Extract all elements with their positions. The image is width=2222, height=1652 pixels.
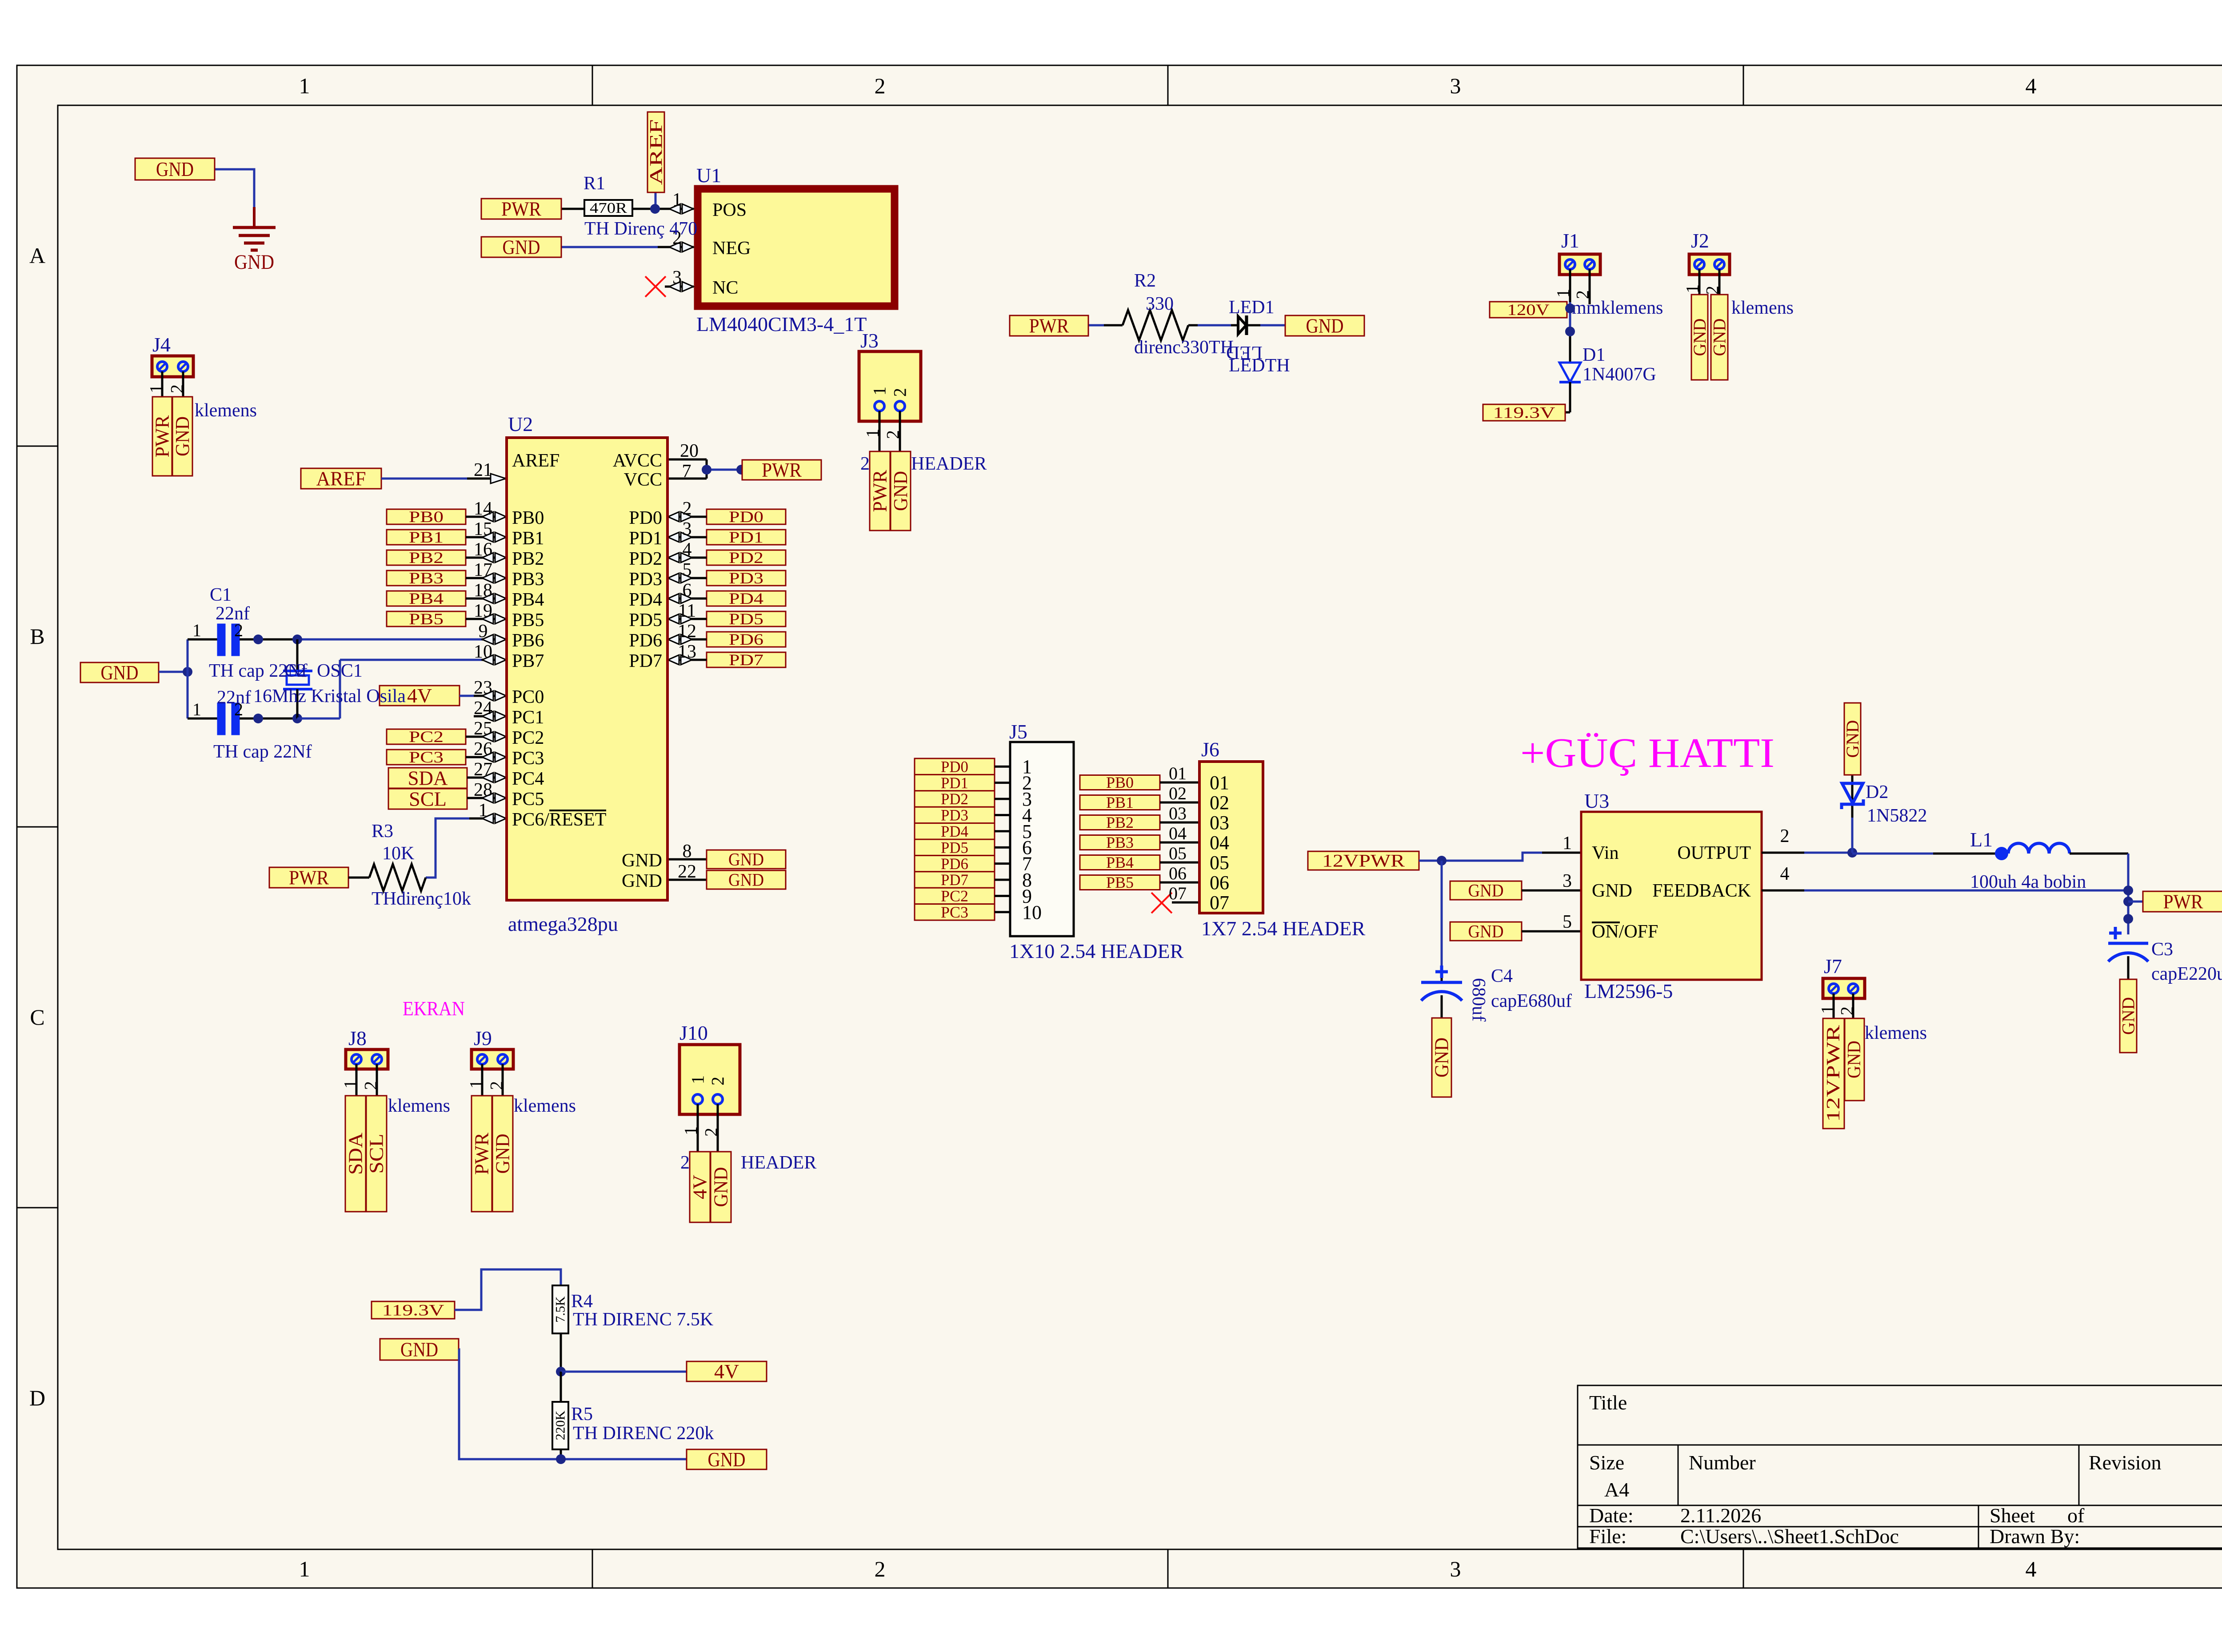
svg-text:AREF: AREF xyxy=(646,120,666,185)
svg-text:Revision: Revision xyxy=(2089,1451,2162,1474)
svg-text:2: 2 xyxy=(167,384,187,393)
svg-text:1: 1 xyxy=(146,384,166,393)
svg-text:LM4040CIM3-4_1T: LM4040CIM3-4_1T xyxy=(696,313,867,335)
svg-text:05: 05 xyxy=(1210,852,1229,874)
svg-text:21: 21 xyxy=(474,460,492,480)
svg-text:PD5: PD5 xyxy=(941,838,968,856)
svg-text:06: 06 xyxy=(1169,863,1187,883)
svg-text:VCC: VCC xyxy=(624,470,662,490)
svg-text:330: 330 xyxy=(1146,294,1174,314)
svg-text:PWR: PWR xyxy=(762,459,802,481)
svg-text:SDA: SDA xyxy=(345,1133,367,1175)
svg-text:PB3: PB3 xyxy=(1106,834,1134,851)
svg-text:GND: GND xyxy=(492,1134,514,1174)
svg-text:GND: GND xyxy=(708,1448,746,1471)
svg-text:28: 28 xyxy=(474,780,492,800)
svg-text:LM2596-5: LM2596-5 xyxy=(1584,980,1673,1002)
svg-text:2: 2 xyxy=(883,430,903,439)
svg-text:OSC1: OSC1 xyxy=(317,661,363,681)
svg-text:PWR: PWR xyxy=(869,470,891,512)
svg-text:02: 02 xyxy=(1210,792,1229,814)
svg-text:27: 27 xyxy=(474,759,492,780)
svg-text:GND: GND xyxy=(1431,1037,1453,1077)
svg-text:10K: 10K xyxy=(382,843,414,864)
svg-text:01: 01 xyxy=(1169,763,1187,783)
svg-text:13: 13 xyxy=(678,642,696,662)
svg-text:PB4: PB4 xyxy=(1106,854,1134,871)
svg-text:R5: R5 xyxy=(571,1404,593,1425)
svg-text:atmega328pu: atmega328pu xyxy=(508,913,618,935)
svg-text:D1: D1 xyxy=(1583,345,1605,365)
svg-text:PD7: PD7 xyxy=(729,651,763,669)
svg-text:2: 2 xyxy=(1837,1006,1857,1015)
svg-text:R1: R1 xyxy=(583,173,605,194)
svg-text:18: 18 xyxy=(474,580,492,601)
svg-text:04: 04 xyxy=(1169,823,1187,843)
svg-text:GND: GND xyxy=(728,870,764,890)
svg-text:4V: 4V xyxy=(689,1175,711,1199)
svg-text:1: 1 xyxy=(299,1556,310,1581)
svg-text:R3: R3 xyxy=(372,821,393,842)
svg-text:U2: U2 xyxy=(508,413,533,435)
svg-text:GND: GND xyxy=(1306,315,1344,337)
svg-text:PD0: PD0 xyxy=(729,508,763,526)
svg-text:D2: D2 xyxy=(1866,782,1888,802)
svg-text:07: 07 xyxy=(1210,892,1229,914)
svg-text:PB2: PB2 xyxy=(409,549,444,567)
svg-text:PD6: PD6 xyxy=(629,630,662,651)
svg-text:GND: GND xyxy=(156,158,194,180)
svg-text:C3: C3 xyxy=(2151,939,2173,960)
svg-text:PB7: PB7 xyxy=(512,651,544,671)
svg-text:C2: C2 xyxy=(284,661,306,681)
svg-text:6: 6 xyxy=(683,580,692,601)
svg-text:PB6: PB6 xyxy=(512,630,544,651)
svg-text:THdirenç10k: THdirenç10k xyxy=(372,889,471,909)
svg-text:02: 02 xyxy=(1169,783,1187,803)
svg-text:+GÜÇ HATTI: +GÜÇ HATTI xyxy=(1520,730,1774,776)
svg-text:05: 05 xyxy=(1169,843,1187,863)
svg-text:GND: GND xyxy=(1842,720,1862,758)
svg-text:01: 01 xyxy=(1210,772,1229,794)
svg-text:Vin: Vin xyxy=(1592,843,1619,863)
svg-text:10: 10 xyxy=(1022,902,1042,923)
svg-text:PD7: PD7 xyxy=(941,871,968,889)
svg-text:GND: GND xyxy=(710,1167,732,1207)
svg-text:1N4007G: 1N4007G xyxy=(1583,364,1656,385)
svg-text:PWR: PWR xyxy=(1029,315,1069,337)
svg-text:1: 1 xyxy=(1553,289,1573,298)
svg-text:J3: J3 xyxy=(860,329,879,352)
svg-text:PD1: PD1 xyxy=(629,528,662,549)
svg-text:EKRAN: EKRAN xyxy=(403,997,465,1020)
svg-text:PB0: PB0 xyxy=(409,508,444,526)
svg-text:PC1: PC1 xyxy=(512,707,544,728)
svg-text:B: B xyxy=(30,624,44,649)
svg-text:D: D xyxy=(29,1385,45,1410)
svg-text:2: 2 xyxy=(1702,286,1722,295)
svg-text:LED1: LED1 xyxy=(1229,297,1275,318)
svg-text:2: 2 xyxy=(1780,826,1790,846)
svg-text:12VPWR: 12VPWR xyxy=(1823,1025,1844,1122)
svg-text:20: 20 xyxy=(680,441,699,461)
svg-text:U3: U3 xyxy=(1584,790,1609,812)
svg-text:2: 2 xyxy=(683,499,692,519)
svg-text:klemens: klemens xyxy=(514,1096,576,1116)
svg-text:J1: J1 xyxy=(1561,229,1579,252)
svg-text:119.3V: 119.3V xyxy=(382,1301,444,1319)
svg-text:12VPWR: 12VPWR xyxy=(1322,851,1405,871)
svg-text:C4: C4 xyxy=(1491,966,1513,986)
svg-text:PB3: PB3 xyxy=(409,569,444,587)
svg-text:U1: U1 xyxy=(696,164,721,187)
svg-text:Date:: Date: xyxy=(1589,1504,1634,1527)
svg-text:2: 2 xyxy=(234,699,243,719)
svg-text:LEDTH: LEDTH xyxy=(1229,355,1290,376)
svg-text:470R: 470R xyxy=(590,200,627,216)
svg-text:PD2: PD2 xyxy=(629,549,662,569)
svg-text:GND: GND xyxy=(622,871,662,891)
svg-text:PD0: PD0 xyxy=(629,508,662,528)
svg-text:2: 2 xyxy=(701,1128,721,1137)
svg-text:PB2: PB2 xyxy=(1106,814,1134,831)
svg-text:direnc330TH: direnc330TH xyxy=(1134,337,1234,358)
svg-text:7: 7 xyxy=(682,461,691,482)
svg-text:PC6/RESET: PC6/RESET xyxy=(512,810,606,830)
svg-text:GND: GND xyxy=(1468,922,1504,942)
svg-text:R4: R4 xyxy=(571,1291,593,1312)
svg-text:mmklemens: mmklemens xyxy=(1572,298,1663,318)
svg-text:PWR: PWR xyxy=(289,866,329,889)
svg-text:PC2: PC2 xyxy=(512,728,544,748)
svg-text:3: 3 xyxy=(1563,871,1572,891)
svg-text:PD5: PD5 xyxy=(729,610,763,628)
svg-text:1: 1 xyxy=(1682,284,1702,293)
svg-text:PB0: PB0 xyxy=(512,508,544,528)
svg-text:GND: GND xyxy=(622,850,662,871)
svg-text:4: 4 xyxy=(2026,73,2037,98)
svg-text:220K: 220K xyxy=(553,1410,568,1440)
svg-text:2.11.2026: 2.11.2026 xyxy=(1680,1504,1761,1527)
svg-text:PD3: PD3 xyxy=(729,569,763,587)
svg-text:C: C xyxy=(30,1005,44,1030)
svg-text:PD6: PD6 xyxy=(941,855,968,873)
svg-text:GND: GND xyxy=(1844,1041,1865,1078)
svg-text:26: 26 xyxy=(474,739,492,759)
svg-text:24: 24 xyxy=(474,698,492,718)
svg-text:PWR: PWR xyxy=(152,415,173,458)
svg-text:PD1: PD1 xyxy=(941,774,968,792)
svg-text:AREF: AREF xyxy=(512,451,559,471)
svg-text:PC2: PC2 xyxy=(409,728,444,746)
svg-text:1X10 2.54 HEADER: 1X10 2.54 HEADER xyxy=(1009,940,1184,962)
svg-text:GND: GND xyxy=(1592,881,1632,901)
svg-text:TH Direnç 470: TH Direnç 470 xyxy=(584,219,697,239)
svg-text:25: 25 xyxy=(474,718,492,739)
svg-text:GND: GND xyxy=(172,416,193,456)
svg-text:capE220uF: capE220uF xyxy=(2151,964,2222,984)
svg-text:ON/OFF: ON/OFF xyxy=(1592,922,1658,942)
svg-text:J7: J7 xyxy=(1824,955,1842,978)
svg-text:PD4: PD4 xyxy=(729,590,763,607)
svg-text:TH cap 22Nf: TH cap 22Nf xyxy=(213,742,312,762)
svg-text:3: 3 xyxy=(672,267,682,288)
svg-text:TH DIRENC 220k: TH DIRENC 220k xyxy=(573,1423,714,1444)
svg-text:GND: GND xyxy=(728,850,764,870)
svg-text:J10: J10 xyxy=(679,1022,708,1044)
svg-text:SDA: SDA xyxy=(408,767,448,790)
svg-text:GND: GND xyxy=(890,471,911,511)
svg-text:GND: GND xyxy=(234,251,274,274)
svg-text:PC3: PC3 xyxy=(409,748,444,766)
svg-text:TH DIRENC 7.5K: TH DIRENC 7.5K xyxy=(573,1309,713,1330)
svg-text:FEEDBACK: FEEDBACK xyxy=(1652,881,1751,901)
svg-text:03: 03 xyxy=(1169,803,1187,823)
svg-text:119.3V: 119.3V xyxy=(1493,404,1555,422)
svg-text:GND: GND xyxy=(1468,881,1504,901)
svg-text:PD3: PD3 xyxy=(941,806,968,824)
svg-text:03: 03 xyxy=(1210,812,1229,834)
svg-text:1X7 2.54 HEADER: 1X7 2.54 HEADER xyxy=(1201,917,1366,940)
svg-text:PB1: PB1 xyxy=(512,528,544,549)
svg-text:File:: File: xyxy=(1589,1525,1627,1548)
svg-text:11: 11 xyxy=(678,601,696,621)
svg-text:1: 1 xyxy=(1818,1005,1838,1014)
svg-text:klemens: klemens xyxy=(195,400,257,421)
svg-text:GND: GND xyxy=(400,1338,438,1361)
svg-text:22nf: 22nf xyxy=(216,603,250,624)
svg-text:04: 04 xyxy=(1210,832,1229,854)
svg-text:R2: R2 xyxy=(1134,271,1156,291)
svg-text:PC0: PC0 xyxy=(512,687,544,707)
svg-text:06: 06 xyxy=(1210,872,1229,894)
svg-text:PB4: PB4 xyxy=(409,590,444,607)
svg-text:SCL: SCL xyxy=(409,788,447,810)
svg-text:PD6: PD6 xyxy=(729,630,763,648)
svg-text:8: 8 xyxy=(683,841,692,862)
svg-text:J9: J9 xyxy=(474,1027,492,1049)
svg-text:5: 5 xyxy=(1563,912,1572,932)
svg-text:PB3: PB3 xyxy=(512,569,544,590)
svg-text:A: A xyxy=(29,243,45,268)
svg-text:22: 22 xyxy=(678,862,696,882)
svg-text:klemens: klemens xyxy=(1865,1023,1927,1043)
svg-text:J4: J4 xyxy=(152,333,171,356)
svg-text:15: 15 xyxy=(474,519,492,539)
svg-text:19: 19 xyxy=(474,601,492,621)
svg-text:J2: J2 xyxy=(1691,229,1709,252)
svg-text:PC3: PC3 xyxy=(941,903,968,921)
svg-text:12: 12 xyxy=(678,621,696,642)
svg-text:1: 1 xyxy=(299,73,310,98)
svg-text:klemens: klemens xyxy=(1731,298,1794,318)
svg-text:07: 07 xyxy=(1169,883,1187,903)
svg-text:PD3: PD3 xyxy=(629,569,662,590)
svg-text:PB5: PB5 xyxy=(409,610,444,628)
svg-text:5: 5 xyxy=(683,560,692,580)
svg-text:PC3: PC3 xyxy=(512,748,544,769)
svg-text:C:\Users\..\Sheet1.SchDoc: C:\Users\..\Sheet1.SchDoc xyxy=(1680,1525,1899,1548)
svg-text:23: 23 xyxy=(474,678,492,698)
svg-text:PB0: PB0 xyxy=(1106,774,1134,791)
svg-text:PD2: PD2 xyxy=(941,790,968,808)
svg-text:PC2: PC2 xyxy=(941,887,968,905)
svg-text:2: 2 xyxy=(708,1077,728,1085)
svg-text:7.5K: 7.5K xyxy=(553,1296,568,1323)
svg-text:OUTPUT: OUTPUT xyxy=(1677,843,1751,863)
svg-text:1N5822: 1N5822 xyxy=(1867,806,1927,826)
svg-text:GND: GND xyxy=(101,661,139,684)
svg-text:120V: 120V xyxy=(1507,301,1550,319)
svg-text:PD1: PD1 xyxy=(729,528,763,546)
svg-text:10: 10 xyxy=(474,642,492,662)
svg-text:3: 3 xyxy=(1450,1556,1461,1581)
svg-text:AREF: AREF xyxy=(316,467,366,490)
svg-text:4V: 4V xyxy=(714,1360,739,1383)
svg-text:16Mhz Kristal Osila: 16Mhz Kristal Osila xyxy=(253,686,406,706)
svg-text:9: 9 xyxy=(479,621,488,642)
svg-text:J8: J8 xyxy=(348,1027,367,1049)
svg-text:Drawn By:: Drawn By: xyxy=(1990,1525,2080,1548)
svg-text:GND: GND xyxy=(1690,319,1710,356)
svg-text:NC: NC xyxy=(712,278,738,298)
svg-text:J5: J5 xyxy=(1009,720,1027,743)
svg-text:AVCC: AVCC xyxy=(613,451,662,471)
svg-text:4: 4 xyxy=(683,539,692,560)
svg-text:1: 1 xyxy=(1563,833,1572,854)
svg-text:2: 2 xyxy=(890,388,910,397)
svg-text:1: 1 xyxy=(863,429,883,438)
svg-text:PB2: PB2 xyxy=(512,549,544,569)
svg-text:PD4: PD4 xyxy=(941,822,968,840)
svg-text:PB1: PB1 xyxy=(409,528,444,546)
svg-text:17: 17 xyxy=(474,560,492,580)
svg-text:capE680uf: capE680uf xyxy=(1491,991,1572,1011)
svg-text:4V: 4V xyxy=(407,684,432,707)
svg-text:16: 16 xyxy=(474,539,492,560)
svg-text:4: 4 xyxy=(2026,1556,2037,1581)
svg-text:2: 2 xyxy=(361,1081,381,1090)
svg-text:PD2: PD2 xyxy=(729,549,763,567)
svg-text:1: 1 xyxy=(681,1126,701,1135)
svg-text:1: 1 xyxy=(466,1080,486,1089)
svg-text:Size: Size xyxy=(1589,1451,1624,1474)
svg-text:PB4: PB4 xyxy=(512,590,544,610)
svg-text:PC4: PC4 xyxy=(512,769,544,789)
svg-text:Sheet: Sheet xyxy=(1990,1504,2035,1527)
svg-text:1: 1 xyxy=(192,620,201,640)
svg-text:2: 2 xyxy=(875,1556,886,1581)
svg-text:PD4: PD4 xyxy=(629,590,662,610)
svg-text:1: 1 xyxy=(479,800,488,821)
svg-text:1: 1 xyxy=(688,1075,708,1084)
svg-text:J6: J6 xyxy=(1201,738,1219,761)
svg-text:1: 1 xyxy=(672,190,682,210)
svg-text:1: 1 xyxy=(870,387,890,395)
svg-text:L1: L1 xyxy=(1970,828,1993,851)
svg-text:PD5: PD5 xyxy=(629,610,662,630)
svg-text:3: 3 xyxy=(1450,73,1461,98)
svg-text:4: 4 xyxy=(1780,864,1790,884)
svg-text:HEADER: HEADER xyxy=(911,454,987,474)
svg-text:PWR: PWR xyxy=(471,1132,493,1175)
svg-text:of: of xyxy=(2067,1504,2085,1527)
svg-text:PWR: PWR xyxy=(501,198,541,220)
svg-text:PC5: PC5 xyxy=(512,789,544,810)
svg-text:A4: A4 xyxy=(1604,1478,1629,1501)
svg-text:2: 2 xyxy=(875,73,886,98)
svg-text:POS: POS xyxy=(712,200,747,220)
svg-text:Title: Title xyxy=(1589,1391,1627,1414)
svg-text:PWR: PWR xyxy=(2163,890,2203,913)
svg-text:PD0: PD0 xyxy=(941,758,968,775)
svg-text:Number: Number xyxy=(1689,1451,1756,1474)
svg-text:SCL: SCL xyxy=(366,1134,388,1174)
svg-text:100uh 4a bobin: 100uh 4a bobin xyxy=(1970,872,2086,892)
svg-text:klemens: klemens xyxy=(388,1096,450,1116)
svg-text:2: 2 xyxy=(487,1081,507,1090)
svg-text:1: 1 xyxy=(340,1080,360,1089)
svg-text:PD7: PD7 xyxy=(629,651,662,671)
svg-text:2: 2 xyxy=(234,620,243,640)
svg-text:C1: C1 xyxy=(210,585,232,605)
svg-text:3: 3 xyxy=(683,519,692,539)
svg-text:PB1: PB1 xyxy=(1106,794,1134,811)
svg-text:14: 14 xyxy=(474,499,492,519)
svg-text:GND: GND xyxy=(1710,319,1730,356)
svg-text:PB5: PB5 xyxy=(512,610,544,630)
svg-text:GND: GND xyxy=(503,236,540,259)
svg-text:NEG: NEG xyxy=(712,238,751,259)
svg-text:680uf: 680uf xyxy=(1468,978,1489,1022)
svg-text:GND: GND xyxy=(2118,997,2138,1035)
svg-text:1: 1 xyxy=(192,699,201,719)
svg-text:PB5: PB5 xyxy=(1106,874,1134,891)
svg-text:HEADER: HEADER xyxy=(741,1153,816,1173)
